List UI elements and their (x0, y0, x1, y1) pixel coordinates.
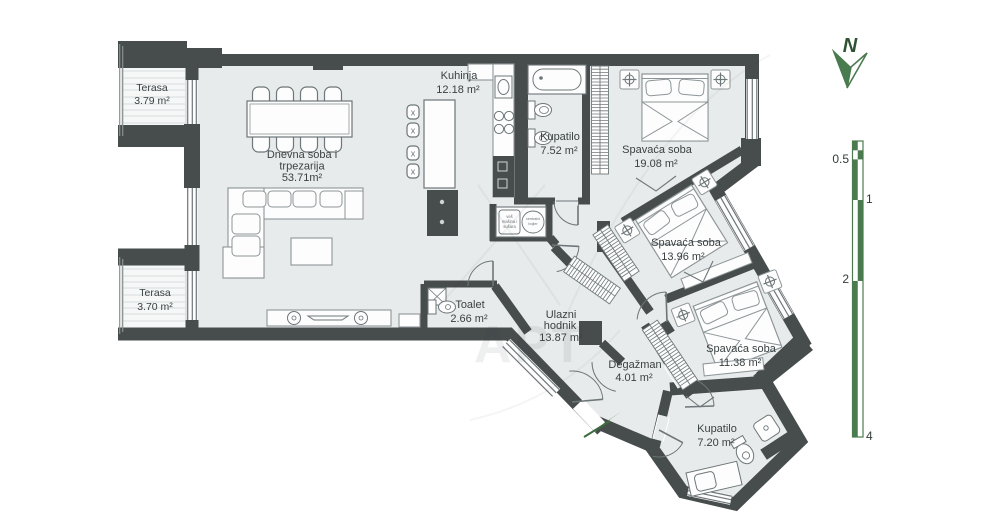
svg-text:4: 4 (866, 429, 873, 443)
svg-text:Degažman: Degažman (608, 359, 661, 371)
svg-text:centralni: centralni (526, 217, 541, 221)
svg-text:Kuhinja: Kuhinja (441, 70, 479, 82)
svg-text:0.5: 0.5 (832, 152, 849, 166)
svg-text:x: x (411, 167, 416, 177)
svg-text:N: N (843, 35, 858, 57)
svg-text:Terasa: Terasa (139, 287, 171, 299)
svg-text:Spavaća soba: Spavaća soba (622, 144, 693, 156)
svg-text:12.18 m²: 12.18 m² (436, 84, 480, 96)
svg-text:АРТ: АРТ (474, 316, 586, 374)
svg-text:bojler: bojler (528, 222, 538, 226)
svg-text:x: x (411, 149, 416, 159)
svg-text:x: x (411, 126, 416, 136)
svg-text:Spavaća soba: Spavaća soba (706, 343, 777, 355)
svg-text:3.79 m²: 3.79 m² (134, 95, 170, 107)
svg-text:trpezarija: trpezarija (279, 161, 325, 173)
svg-text:4.01 m²: 4.01 m² (615, 372, 653, 384)
svg-text:11.38 m²: 11.38 m² (719, 357, 762, 369)
svg-text:53.71m²: 53.71m² (282, 172, 323, 184)
svg-text:Kupatilo: Kupatilo (540, 131, 580, 143)
svg-text:Kupatilo: Kupatilo (697, 423, 737, 435)
svg-text:1: 1 (866, 192, 873, 206)
svg-text:19.08 m²: 19.08 m² (634, 158, 678, 170)
svg-text:x: x (411, 108, 416, 118)
svg-text:7.20 m²: 7.20 m² (697, 437, 735, 449)
svg-text:7.52 m²: 7.52 m² (540, 145, 578, 157)
svg-text:Toalet: Toalet (455, 299, 484, 311)
svg-text:3.70 m²: 3.70 m² (137, 301, 173, 313)
svg-text:Spavaća soba: Spavaća soba (651, 237, 722, 249)
svg-text:13.96 m²: 13.96 m² (661, 251, 705, 263)
svg-text:Dnevna soba i: Dnevna soba i (267, 149, 337, 161)
svg-text:Terasa: Terasa (136, 82, 168, 94)
svg-text:2: 2 (842, 272, 849, 286)
